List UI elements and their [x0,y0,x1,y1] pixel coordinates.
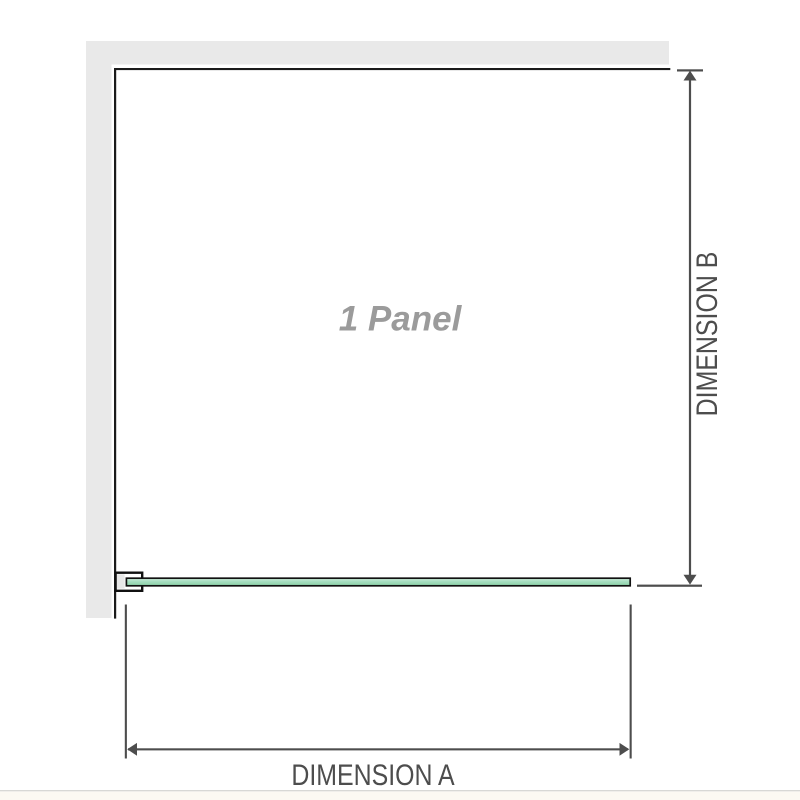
svg-text:DIMENSION B: DIMENSION B [690,252,723,417]
svg-text:1 Panel: 1 Panel [339,299,463,338]
svg-text:DIMENSION A: DIMENSION A [291,758,455,791]
